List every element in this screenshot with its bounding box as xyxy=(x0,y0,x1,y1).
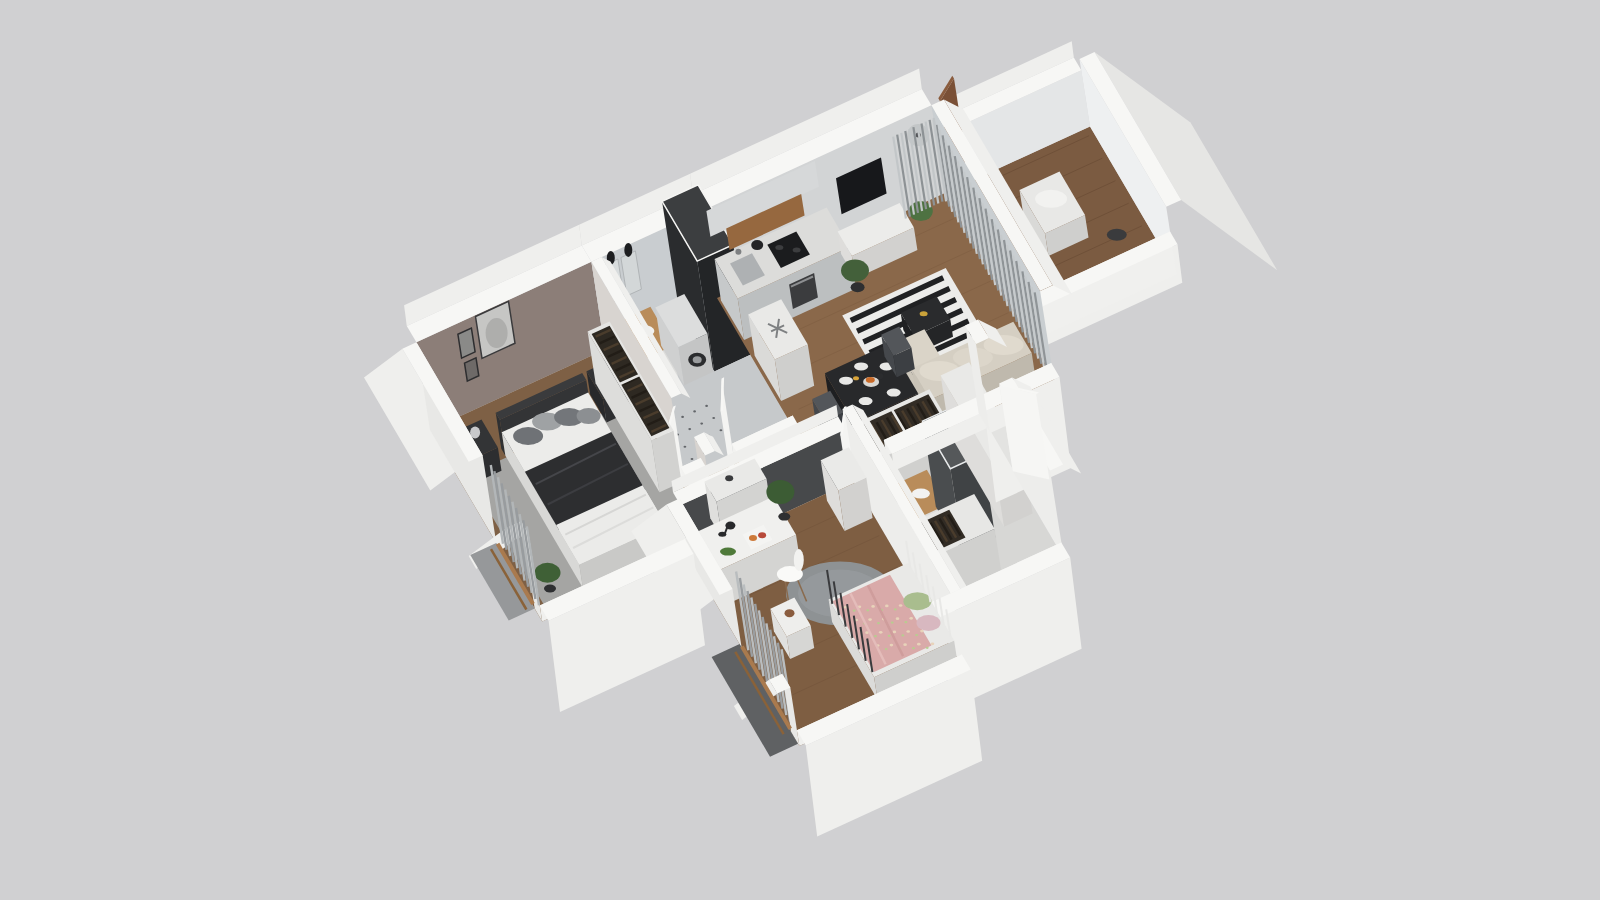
bedroom-plant xyxy=(535,563,561,583)
kids-duvet-dots-cream-3-2 xyxy=(906,630,910,633)
kids-plant-pot xyxy=(778,513,790,521)
bedroom-art-motif xyxy=(486,318,508,348)
dining-plate-1 xyxy=(839,377,853,385)
floorplan-3d-view xyxy=(0,0,1600,900)
kids-duvet-dots-cream-1-1 xyxy=(868,618,872,621)
shower-drain-dots-4-1 xyxy=(712,417,715,419)
shower-drain-dots-1-3 xyxy=(691,458,694,460)
kids-pillow-green xyxy=(903,592,931,610)
balcony-chair-cushion xyxy=(1035,190,1067,208)
dining-food-1 xyxy=(866,377,875,383)
kids-plant xyxy=(766,480,794,504)
kids-duvet-dots-cream-3-0 xyxy=(885,605,889,608)
desk-lamp-head xyxy=(725,522,735,530)
kids-duvet-dots-green-2-1 xyxy=(891,621,894,623)
kids-duvet-dots-green-3-2 xyxy=(915,634,918,636)
kids-chair-back xyxy=(794,549,804,571)
washing-machine-door-ring xyxy=(693,356,702,363)
cooktop-burner-1 xyxy=(775,245,783,250)
kids-duvet-dots-cream-2-3 xyxy=(903,643,907,646)
shower-drain-dots-4-2 xyxy=(720,429,723,431)
shower-drain-dots-4-0 xyxy=(705,405,708,407)
bed-pillow-4 xyxy=(577,408,601,424)
kids-duvet-dots-green-0-2 xyxy=(874,635,877,637)
kids-duvet-dots-green-2-2 xyxy=(901,634,904,636)
desk-book-art-1 xyxy=(749,535,757,541)
coffee-table-deco xyxy=(920,311,928,316)
kids-duvet-dots-cream-3-3 xyxy=(917,643,921,646)
shower-drain-dots-2-1 xyxy=(688,428,691,430)
kids-duvet-dots-green-1-1 xyxy=(877,622,880,624)
dining-plate-2 xyxy=(854,362,868,370)
cooktop-burner-2 xyxy=(793,247,801,252)
bedroom-plant-pot xyxy=(544,585,556,593)
corridor-sink xyxy=(912,489,930,499)
kids-duvet-dots-cream-1-3 xyxy=(890,644,894,647)
shower-drain-dots-3-0 xyxy=(693,410,696,412)
kids-duvet-dots-cream-2-0 xyxy=(871,605,875,608)
hall-cabinet-deco xyxy=(725,475,733,481)
kids-duvet-dots-cream-4-0 xyxy=(899,604,903,607)
tv-plant xyxy=(841,260,869,282)
kids-duvet-dots-cream-4-2 xyxy=(920,630,924,633)
dining-plate-5 xyxy=(887,389,901,397)
floorplan-svg xyxy=(0,0,1600,900)
balcony-table xyxy=(1107,229,1127,241)
kids-duvet-dots-cream-2-2 xyxy=(893,631,897,634)
shower-drain-dots-1-2 xyxy=(684,446,687,448)
coffee-machine xyxy=(751,240,763,250)
kids-duvet-dots-cream-3-1 xyxy=(896,617,900,620)
dining-food-2 xyxy=(853,376,859,380)
tv-plant-pot xyxy=(851,282,865,292)
bedroom-art-small xyxy=(458,328,475,358)
bed-pillow-1 xyxy=(513,427,543,445)
dining-bottle xyxy=(877,373,883,379)
kids-duvet-dots-green-3-1 xyxy=(904,621,907,623)
stool-toy xyxy=(785,609,795,617)
shower-drain-dots-3-1 xyxy=(700,423,703,425)
desk-lamp-base xyxy=(718,532,726,537)
kids-duvet-dots-green-2-3 xyxy=(912,647,915,649)
dining-plate-4 xyxy=(859,397,873,405)
kids-duvet-dots-green-3-3 xyxy=(926,647,929,649)
kids-duvet-dots-cream-1-2 xyxy=(879,631,883,634)
kids-duvet-dots-green-1-2 xyxy=(888,635,891,637)
kids-pillow-pink xyxy=(917,615,941,631)
bathroom-sconce-right xyxy=(624,243,632,257)
bedroom-art-tiny xyxy=(465,358,479,381)
kids-duvet-dots-green-1-0 xyxy=(866,609,869,611)
shower-drain-dots-2-0 xyxy=(681,416,684,418)
kids-duvet-dots-green-0-0 xyxy=(853,610,856,612)
kids-duvet-dots-green-0-3 xyxy=(885,648,888,650)
kids-duvet-dots-green-3-0 xyxy=(894,608,897,610)
desk-dino-toy xyxy=(720,548,736,556)
desk-book-art-2 xyxy=(758,532,766,538)
kids-duvet-dots-cream-4-3 xyxy=(931,642,935,645)
kitchen-faucet xyxy=(735,249,741,255)
kids-duvet-dots-cream-4-1 xyxy=(909,617,913,620)
